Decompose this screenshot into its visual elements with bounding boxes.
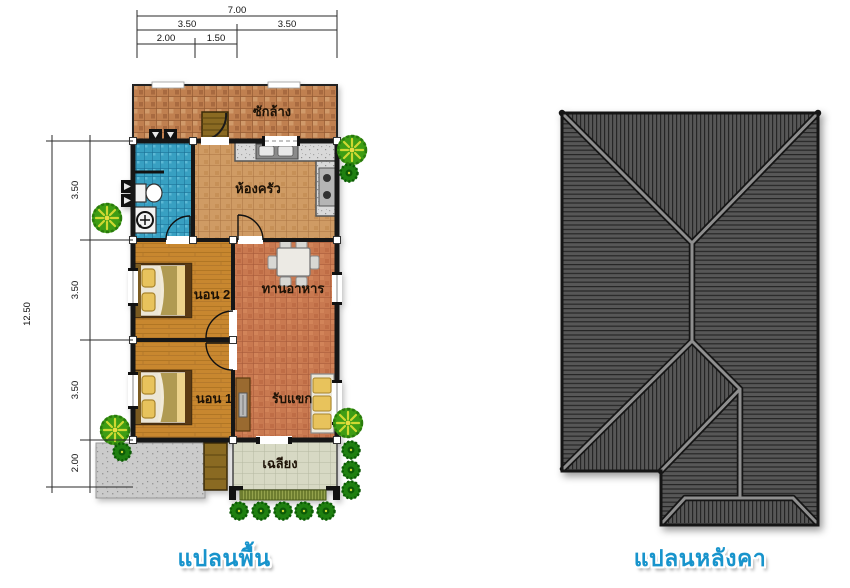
dim-left-upper: 3.50 [70, 181, 81, 200]
front-door [256, 436, 292, 444]
dim-left-middle: 3.50 [70, 281, 81, 300]
concrete-pad [96, 443, 205, 498]
bed-icon-bedroom2 [135, 264, 191, 317]
roof-plan-caption: แปลนหลังคา [608, 541, 792, 577]
dining-label: ทานอาหาร [262, 281, 325, 296]
front-steps-icon [204, 443, 227, 490]
bedroom2-label: นอน 2 [194, 287, 230, 302]
tv-cabinet-icon [236, 378, 250, 431]
tree-icon [333, 408, 363, 438]
stove-icon [319, 168, 335, 206]
blueprint-page: ซักล้าง ห้องครัว ทานอาหาร นอน 2 นอน 1 รั… [0, 0, 850, 588]
bush-icon [342, 441, 360, 459]
house-plan-drawing: ซักล้าง ห้องครัว ทานอาหาร นอน 2 นอน 1 รั… [0, 0, 850, 588]
dim-left-total: 12.50 [22, 302, 33, 326]
kitchen-label: ห้องครัว [235, 181, 281, 196]
dim-left-lower: 3.50 [70, 381, 81, 400]
living-label: รับแขก [272, 391, 313, 406]
bedroom1-window [128, 372, 138, 409]
bush-icon [342, 481, 360, 499]
laundry-label: ซักล้าง [253, 104, 291, 119]
dimension-lines-top: 7.00 3.50 3.50 2.00 1.50 [137, 5, 337, 58]
bush-icon [295, 502, 313, 520]
floor-plan-caption: แปลนพื้น [144, 541, 304, 577]
roof-plan [562, 113, 818, 525]
bedroom2-window [128, 268, 138, 306]
bush-icon [342, 461, 360, 479]
dim-top-sub-left: 2.00 [157, 33, 176, 44]
floor-plan: ซักล้าง ห้องครัว ทานอาหาร นอน 2 นอน 1 รั… [96, 82, 342, 500]
tree-icon [92, 203, 122, 233]
washing-machine-icon [134, 207, 156, 233]
bedroom1-label: นอน 1 [196, 391, 232, 406]
toilet-icon [135, 184, 162, 202]
kitchen-window [262, 136, 300, 146]
sink-icon [256, 144, 298, 159]
bush-icon [252, 502, 270, 520]
bed-icon-bedroom1 [135, 371, 191, 424]
porch-label: เฉลียง [262, 456, 297, 471]
hedge-strip [240, 490, 326, 500]
bush-icon [113, 443, 131, 461]
bush-icon [230, 502, 248, 520]
bush-icon [340, 164, 358, 182]
dim-top-sub-right: 1.50 [207, 33, 226, 44]
laundry-area-floor [133, 85, 337, 141]
sofa-icon [311, 374, 334, 433]
bush-icon [274, 502, 292, 520]
dim-top-right-half: 3.50 [278, 19, 297, 30]
dining-window [332, 272, 342, 305]
dim-top-left-half: 3.50 [178, 19, 197, 30]
tree-icon [337, 135, 367, 165]
bush-icon [317, 502, 335, 520]
dim-top-total: 7.00 [228, 5, 247, 16]
dim-left-bottom: 2.00 [70, 454, 81, 473]
